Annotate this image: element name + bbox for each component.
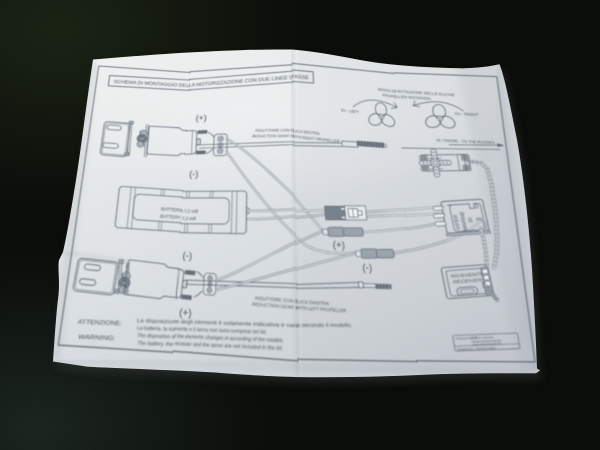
svg-text:(-): (-) bbox=[189, 171, 199, 180]
svg-text:GER: GER bbox=[471, 335, 478, 340]
svg-text:20: 20 bbox=[467, 217, 475, 223]
svg-text:(+): (+) bbox=[333, 238, 346, 250]
svg-text:Sx - LEFT: Sx - LEFT bbox=[341, 108, 360, 115]
svg-text:AL TIMONE - TO THE RUDDER: AL TIMONE - TO THE RUDDER bbox=[436, 138, 495, 145]
svg-text:(+): (+) bbox=[179, 308, 192, 319]
svg-text:(-): (-) bbox=[182, 252, 192, 262]
svg-text:(+): (+) bbox=[196, 115, 207, 124]
svg-text:ATTENZIONE:: ATTENZIONE: bbox=[78, 318, 123, 327]
svg-text:Dx - RIGHT: Dx - RIGHT bbox=[455, 111, 479, 117]
svg-text:WARNING:: WARNING: bbox=[78, 333, 117, 342]
svg-text:Designed by:: Designed by: bbox=[457, 347, 474, 351]
svg-text:(-): (-) bbox=[362, 261, 372, 273]
